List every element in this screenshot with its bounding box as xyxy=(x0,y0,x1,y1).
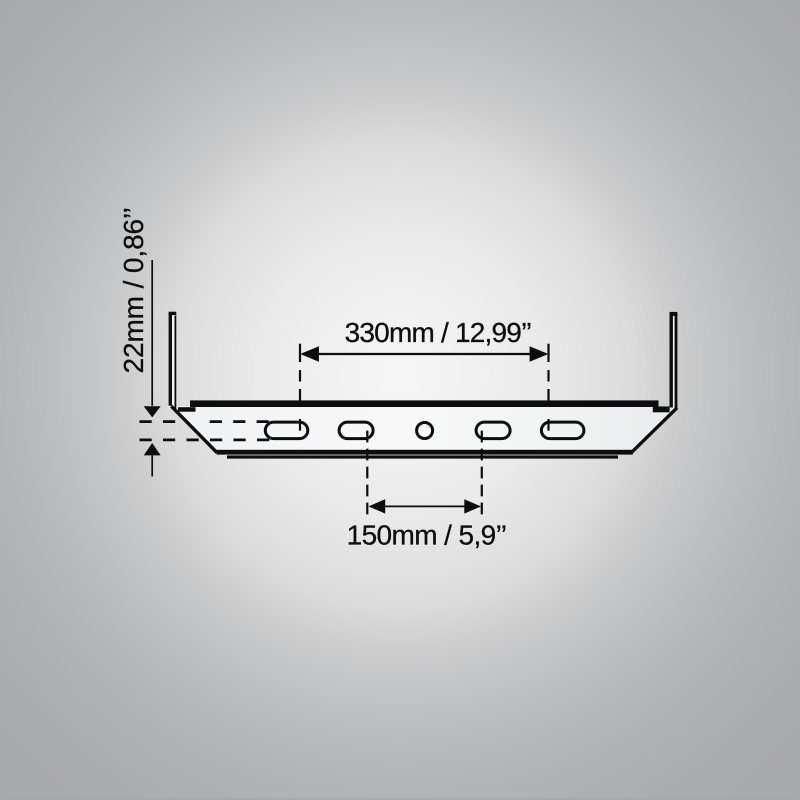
svg-text:22mm / 0,86’’: 22mm / 0,86’’ xyxy=(118,207,149,373)
svg-text:330mm / 12,99’’: 330mm / 12,99’’ xyxy=(345,317,532,348)
svg-text:150mm / 5,9’’: 150mm / 5,9’’ xyxy=(347,520,507,551)
